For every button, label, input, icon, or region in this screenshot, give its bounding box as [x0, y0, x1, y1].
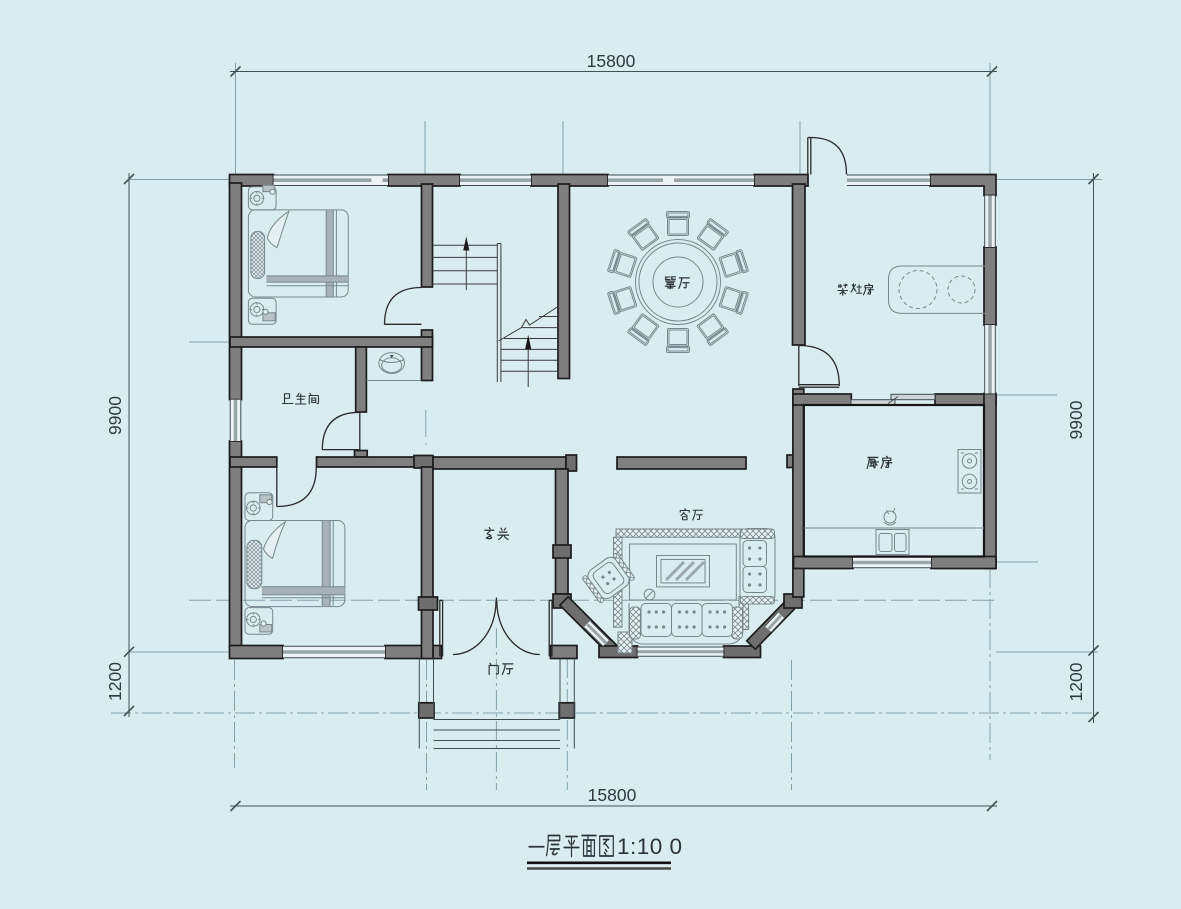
- svg-text:15800: 15800: [587, 51, 636, 71]
- svg-text:9900: 9900: [1066, 400, 1086, 439]
- svg-text:9900: 9900: [105, 396, 125, 435]
- svg-text:1200: 1200: [1066, 662, 1086, 701]
- svg-text:1200: 1200: [105, 662, 125, 701]
- svg-text:1:10 0: 1:10 0: [617, 834, 683, 859]
- svg-text:15800: 15800: [588, 785, 637, 805]
